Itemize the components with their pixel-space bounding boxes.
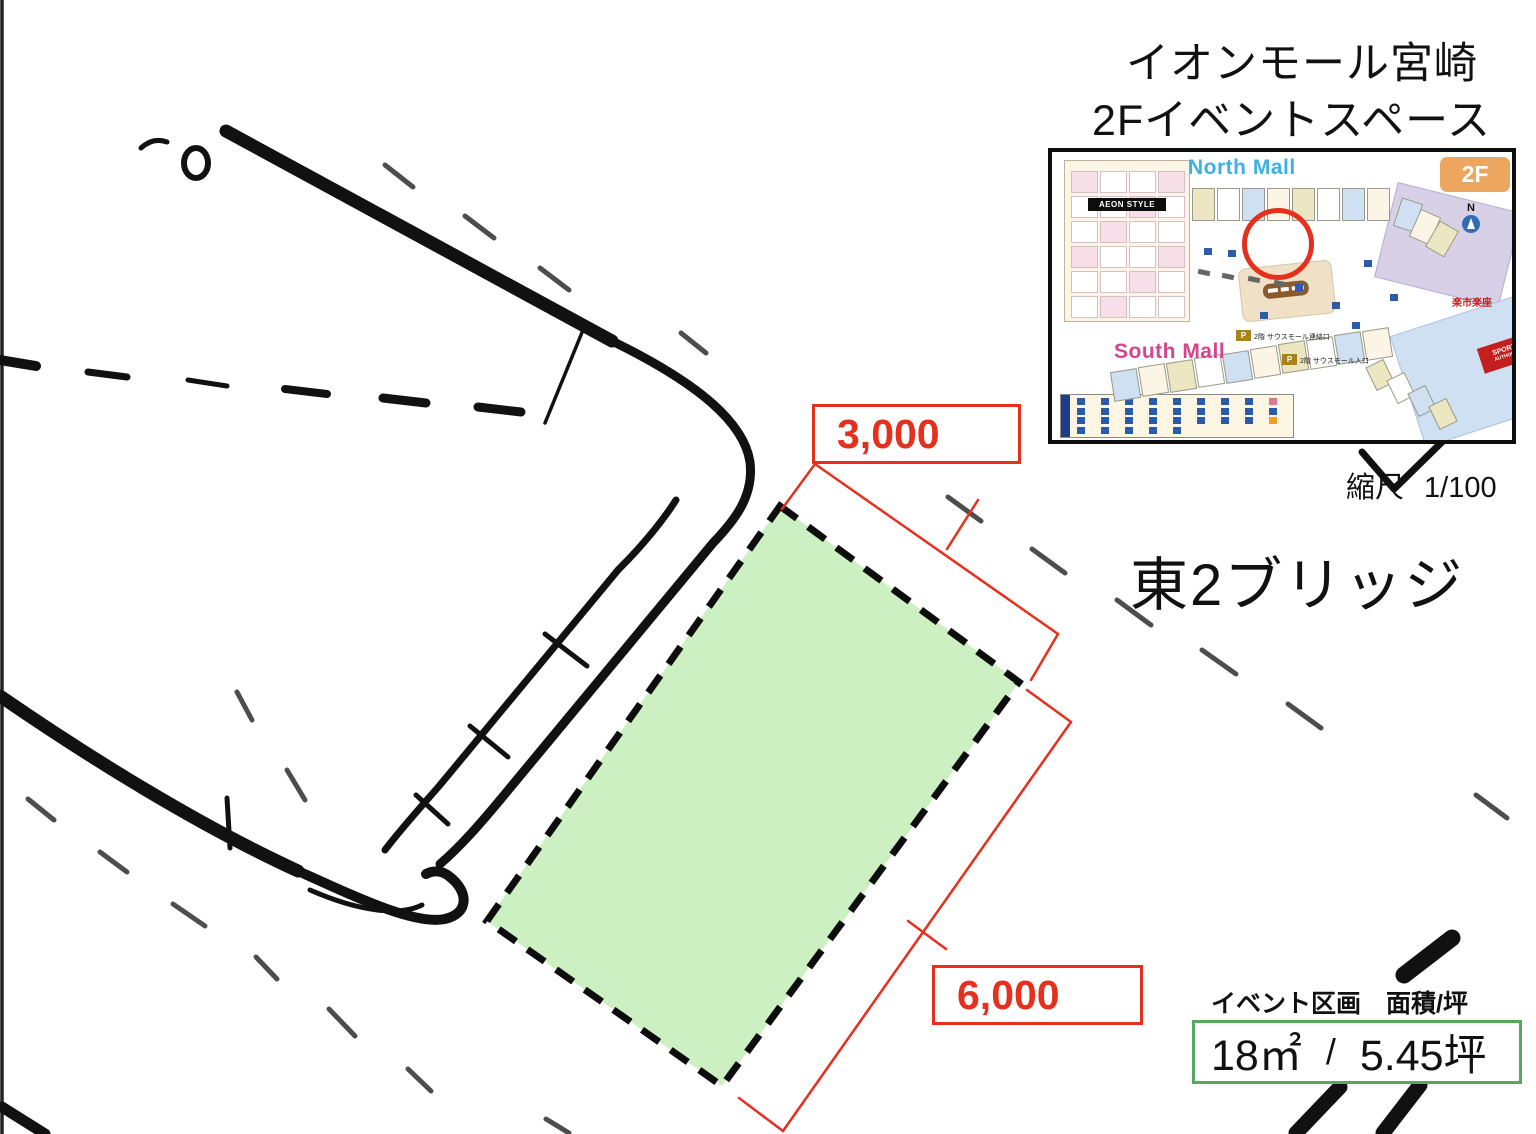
map-parcel xyxy=(1071,271,1098,293)
map-parcel xyxy=(1071,296,1098,318)
legend-icon xyxy=(1149,417,1157,424)
event-space-marker-circle xyxy=(1242,208,1314,280)
legend-icon xyxy=(1197,408,1205,415)
floor-plan-page: イオンモール宮崎 2Fイベントスペース 縮尺1/100 東2ブリッジ 3,000… xyxy=(0,0,1536,1134)
legend-icon xyxy=(1221,417,1229,424)
legend-icon xyxy=(1125,408,1133,415)
scale-value: 1/100 xyxy=(1424,472,1497,504)
legend-icon xyxy=(1101,408,1109,415)
map-parcel xyxy=(1317,188,1340,221)
north-mall-label: North Mall xyxy=(1188,156,1296,180)
aeon-style-banner: AEON STYLE xyxy=(1088,198,1166,211)
dimension-width-value: 3,000 xyxy=(837,411,940,458)
legend-icon xyxy=(1101,398,1109,405)
map-parcel xyxy=(1100,246,1127,268)
dimension-depth-box: 6,000 xyxy=(932,965,1143,1025)
legend-icon xyxy=(1173,398,1181,405)
map-parcel xyxy=(1367,188,1390,221)
floor-2f-badge: 2F xyxy=(1440,157,1510,192)
map-parcel xyxy=(1364,260,1372,267)
legend-icon xyxy=(1269,408,1277,415)
legend-icon xyxy=(1221,408,1229,415)
legend-icon xyxy=(1245,408,1253,415)
map-parcel xyxy=(1352,322,1360,329)
legend-icon xyxy=(1221,398,1229,405)
legend-icon xyxy=(1077,427,1085,434)
legend-icon xyxy=(1149,398,1157,405)
area-tsubo-value: 5.45坪 xyxy=(1360,1021,1487,1083)
area-panel-label: イベント区画 面積/坪 xyxy=(1211,984,1468,1020)
legend-icon xyxy=(1245,417,1253,424)
legend-icon xyxy=(1125,417,1133,424)
legend-side-bar xyxy=(1061,395,1070,437)
legend-icon xyxy=(1269,417,1277,424)
compass-icon: N xyxy=(1456,202,1486,233)
map-parcel xyxy=(1222,273,1235,280)
legend-icon xyxy=(1149,408,1157,415)
map-parcel xyxy=(1100,296,1127,318)
parking-badge-1: P xyxy=(1236,330,1251,341)
legend-icon xyxy=(1173,427,1181,434)
legend-icon xyxy=(1101,427,1109,434)
map-parcel xyxy=(1390,294,1398,301)
map-parcel xyxy=(1110,368,1141,402)
location-title: 東2ブリッジ xyxy=(1130,538,1464,622)
map-parcel xyxy=(1100,171,1127,193)
map-parcel xyxy=(1100,221,1127,243)
map-parcel xyxy=(1192,188,1215,221)
legend-icon xyxy=(1197,398,1205,405)
legend-icon xyxy=(1077,417,1085,424)
legend-icon xyxy=(1101,417,1109,424)
map-parcel xyxy=(1071,221,1098,243)
map-parcel xyxy=(1138,363,1169,397)
entrance-label-1: 2階 サウスモール連絡口 xyxy=(1254,332,1330,342)
map-parcel xyxy=(1217,188,1240,221)
map-parcel xyxy=(1071,171,1098,193)
map-parcel xyxy=(1129,171,1156,193)
map-parcel xyxy=(1071,246,1098,268)
scale-label: 縮尺 xyxy=(1346,472,1404,504)
map-parcel xyxy=(1158,246,1185,268)
page-title-line1: イオンモール宮崎 xyxy=(1126,36,1491,93)
area-separator: / xyxy=(1326,1031,1336,1073)
map-parcel xyxy=(1198,269,1211,276)
scale-note: 縮尺1/100 xyxy=(1346,464,1497,506)
map-parcel xyxy=(1100,271,1127,293)
south-mall-label: South Mall xyxy=(1114,340,1225,364)
area-panel-box: 18㎡ / 5.45坪 xyxy=(1192,1020,1522,1084)
map-parcel xyxy=(1129,221,1156,243)
map-parcel xyxy=(1250,345,1281,379)
map-parcel xyxy=(1129,246,1156,268)
map-parcel xyxy=(1342,188,1365,221)
map-parcel xyxy=(1158,271,1185,293)
area-sqm-value: 18㎡ xyxy=(1211,1021,1302,1083)
legend-icon xyxy=(1269,398,1277,405)
sports-store-sign: SPORTS AUTHORITY xyxy=(1477,332,1516,374)
map-parcel xyxy=(1158,171,1185,193)
map-legend-strip xyxy=(1060,394,1294,438)
page-title-line2: 2Fイベントスペース xyxy=(1092,93,1491,150)
compass-n-label: N xyxy=(1467,202,1475,214)
legend-icon xyxy=(1245,398,1253,405)
parking-badge-2: P xyxy=(1282,354,1297,365)
map-parcel xyxy=(1222,350,1253,384)
map-parcel xyxy=(1129,296,1156,318)
map-parcel xyxy=(1158,296,1185,318)
map-parcel xyxy=(1295,284,1303,291)
map-parcel xyxy=(1332,302,1340,309)
map-parcel xyxy=(1158,221,1185,243)
mall-map-inset: AEON STYLE North Mall South Mall 2F N SP… xyxy=(1048,148,1516,444)
legend-icon xyxy=(1077,398,1085,405)
legend-icon xyxy=(1125,427,1133,434)
entrance-label-2: 2階 サウスモール入口 xyxy=(1300,356,1369,366)
map-parcel xyxy=(1204,248,1212,255)
map-parcel xyxy=(1129,271,1156,293)
legend-icon xyxy=(1197,417,1205,424)
page-title: イオンモール宮崎 2Fイベントスペース xyxy=(1092,36,1491,150)
legend-icon xyxy=(1149,427,1157,434)
dimension-width-box: 3,000 xyxy=(812,404,1021,464)
legend-icon xyxy=(1173,417,1181,424)
map-parcel xyxy=(1228,250,1236,257)
map-parcel xyxy=(1260,312,1268,319)
restaurant-label: 楽市楽座 xyxy=(1452,294,1492,309)
aeon-style-block xyxy=(1064,160,1190,322)
legend-icon xyxy=(1077,408,1085,415)
dimension-depth-value: 6,000 xyxy=(957,972,1060,1019)
legend-icon xyxy=(1173,408,1181,415)
